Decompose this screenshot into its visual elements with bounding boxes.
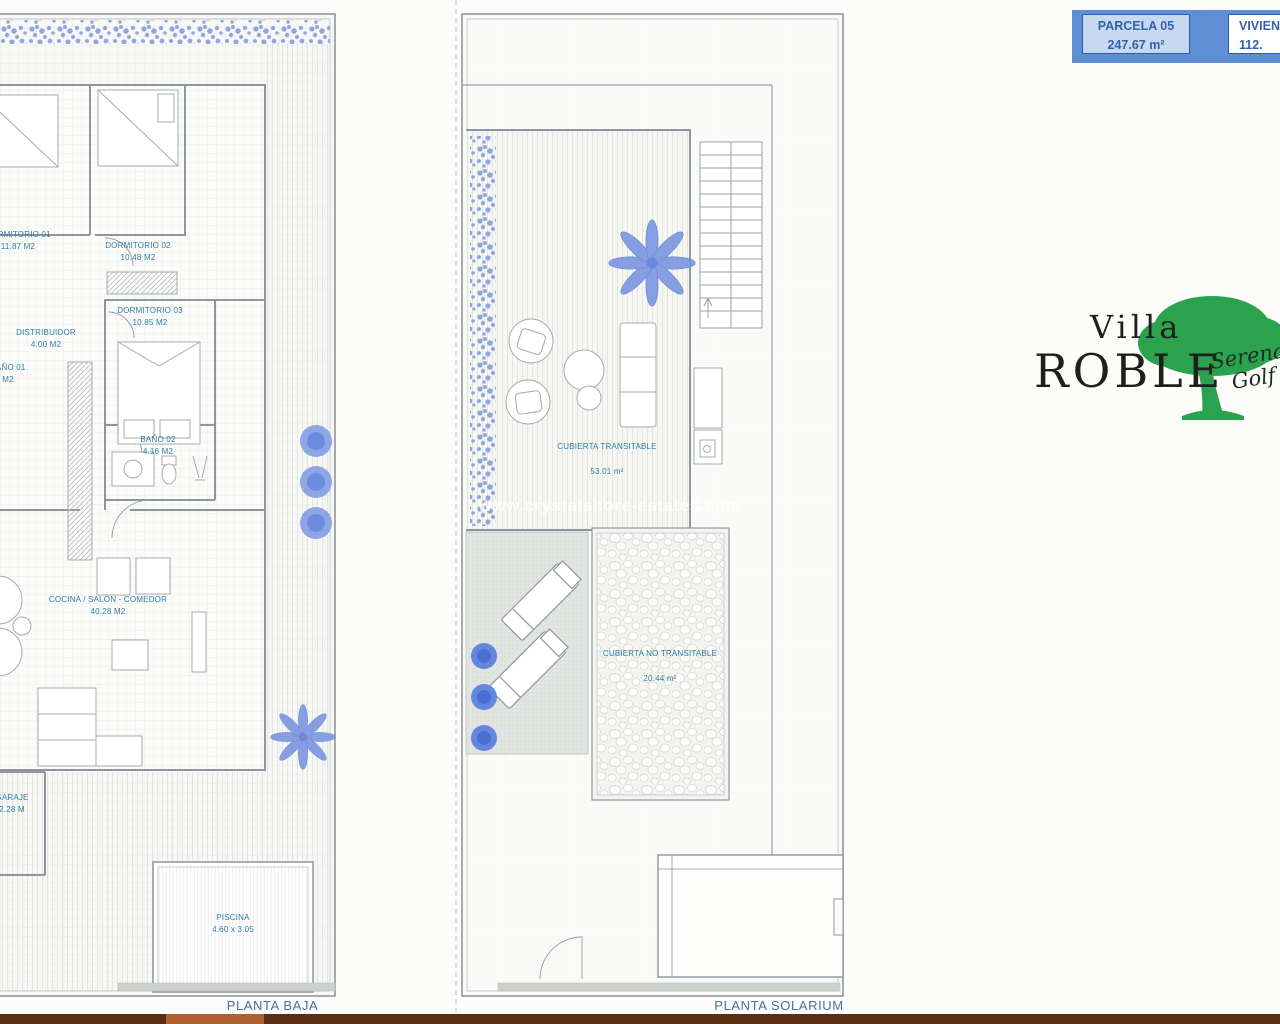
room-label-garaje: GARAJE2.28 M (0, 792, 92, 816)
room-label-distribuidor: DISTRIBUIDOR4.00 M2 (0, 327, 126, 351)
palm-icon (271, 705, 336, 770)
tv-unit (192, 612, 206, 672)
hedge-icon (470, 136, 496, 526)
storeroom (658, 855, 843, 977)
parcela-label: PARCELA 05 (1083, 17, 1189, 36)
room-label-piscina: PISCINA4.60 x 3.05 (153, 912, 313, 936)
bar-counter (694, 368, 722, 428)
vivienda-area: 112. (1239, 36, 1280, 55)
wardrobe (107, 272, 177, 294)
palm-icon (609, 220, 695, 306)
room-label-dormitorio-02: DORMITORIO 0210.48 M2 (58, 240, 218, 264)
bed-dorm01 (0, 95, 58, 167)
sofa (620, 323, 656, 427)
parcela-area: 247.67 m² (1083, 36, 1189, 55)
bottom-bar (0, 1014, 1280, 1024)
bush-icon (300, 425, 332, 539)
chair (136, 558, 170, 594)
floor-plan-sheet: DORMITORIO 0111.87 M2 DORMITORIO 0210.48… (0, 0, 1280, 1024)
plot-baja (0, 14, 335, 996)
vivienda-label: VIVIENDA (1239, 17, 1280, 36)
header-strip: PARCELA 05 247.67 m² VIVIENDA 112. (1072, 10, 1280, 63)
logo-serena-golf-text: Serena Golf (1209, 340, 1280, 395)
round-table (564, 350, 604, 390)
room-label-cubierta-transitable: CUBIERTA TRANSITABLE53.01 m² (527, 441, 687, 478)
stairs (700, 142, 762, 328)
villa-roble-logo: Villa ROBLE Serena Golf (1032, 296, 1280, 428)
plan-title-planta-baja: PLANTA BAJA (190, 998, 355, 1013)
chair (97, 558, 130, 595)
kitchen-island (112, 640, 148, 670)
vivienda-info-box: VIVIENDA 112. (1228, 14, 1280, 54)
logo-villa-text: Villa (1090, 308, 1182, 346)
bush-icon (471, 643, 497, 751)
room-label-bano-02: BAÑO 024.16 M2 (78, 434, 238, 458)
room-label-bano-01: BAÑO 01M2 (0, 362, 88, 386)
deck (466, 532, 588, 754)
room-label-cocina-salon: COCINA / SALÓN - COMEDOR40.28 M2 (28, 594, 188, 618)
wardrobe (68, 362, 92, 560)
parcela-info-box: PARCELA 05 247.67 m² (1082, 14, 1190, 54)
room-label-cubierta-no-transitable: CUBIERTA NO TRANSITABLE20.44 m² (580, 648, 740, 685)
hedge-icon (0, 20, 330, 44)
room-label-dormitorio-03: DORMITORIO 0310.85 M2 (70, 305, 230, 329)
sofa (38, 688, 96, 766)
plan-title-planta-solarium: PLANTA SOLARIUM (690, 998, 868, 1013)
watermark: www.crystalshore-estates.com (478, 496, 742, 516)
logo-roble-text: ROBLE (1034, 344, 1224, 398)
bottom-bar-accent (166, 1014, 264, 1024)
